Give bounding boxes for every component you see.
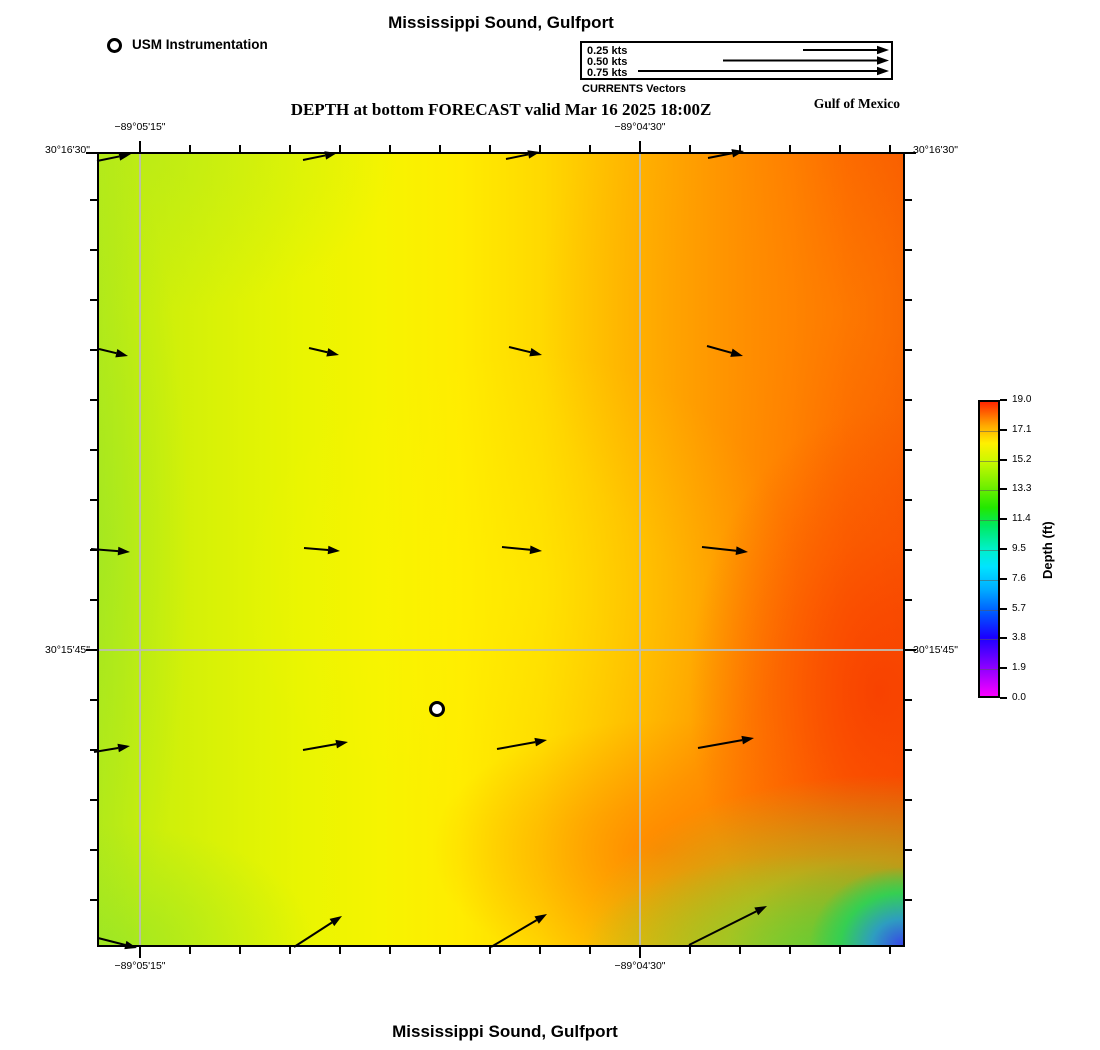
colorbar-tick bbox=[1000, 488, 1007, 490]
axis-tick-y bbox=[90, 299, 97, 301]
lon-label-top: −89°05'15" bbox=[80, 121, 200, 133]
axis-tick-y bbox=[905, 549, 912, 551]
axis-tick-y bbox=[90, 199, 97, 201]
station-legend-circle-icon bbox=[107, 38, 122, 53]
colorbar-level-line bbox=[980, 550, 998, 551]
region-label: Gulf of Mexico bbox=[740, 96, 900, 112]
lat-label-left: 30°15'45" bbox=[18, 644, 90, 656]
axis-tick-y bbox=[90, 249, 97, 251]
axis-tick-x bbox=[139, 141, 141, 152]
axis-tick-y bbox=[905, 799, 912, 801]
axis-tick-x bbox=[689, 947, 691, 954]
colorbar-level-line bbox=[980, 580, 998, 581]
lat-label-left: 30°16'30" bbox=[18, 144, 90, 156]
colorbar-tick-label: 17.1 bbox=[1012, 424, 1052, 435]
axis-tick-y bbox=[90, 699, 97, 701]
axis-tick-x bbox=[689, 145, 691, 152]
lat-gridline-1 bbox=[99, 649, 903, 651]
colorbar-tick bbox=[1000, 518, 1007, 520]
station-legend-label: USM Instrumentation bbox=[132, 37, 268, 52]
depth-colorbar bbox=[978, 400, 1000, 698]
axis-tick-x bbox=[239, 145, 241, 152]
axis-tick-x bbox=[239, 947, 241, 954]
axis-tick-y bbox=[905, 249, 912, 251]
axis-tick-x bbox=[489, 947, 491, 954]
axis-tick-y bbox=[905, 699, 912, 701]
axis-tick-x bbox=[489, 145, 491, 152]
colorbar-level-line bbox=[980, 461, 998, 462]
axis-tick-x bbox=[839, 145, 841, 152]
lon-gridline-1 bbox=[139, 154, 141, 945]
colorbar-tick-label: 3.8 bbox=[1012, 632, 1052, 643]
axis-tick-x bbox=[339, 145, 341, 152]
axis-tick-x bbox=[189, 145, 191, 152]
colorbar-tick bbox=[1000, 697, 1007, 699]
currents-legend-box: 0.25 kts 0.50 kts 0.75 kts bbox=[580, 41, 893, 80]
axis-tick-x bbox=[139, 947, 141, 958]
axis-tick-y bbox=[90, 499, 97, 501]
colorbar-level-line bbox=[980, 431, 998, 432]
axis-tick-y bbox=[905, 299, 912, 301]
axis-tick-y bbox=[905, 199, 912, 201]
colorbar-tick bbox=[1000, 608, 1007, 610]
lat-label-right: 30°15'45" bbox=[913, 644, 958, 656]
colorbar-tick-label: 7.6 bbox=[1012, 573, 1052, 584]
colorbar-tick bbox=[1000, 429, 1007, 431]
axis-tick-y bbox=[90, 849, 97, 851]
axis-tick-x bbox=[889, 145, 891, 152]
depth-heatmap bbox=[97, 152, 905, 947]
axis-tick-y bbox=[905, 499, 912, 501]
axis-tick-y bbox=[905, 849, 912, 851]
axis-tick-y bbox=[905, 749, 912, 751]
axis-tick-y bbox=[905, 449, 912, 451]
colorbar-tick bbox=[1000, 578, 1007, 580]
colorbar-tick-label: 19.0 bbox=[1012, 394, 1052, 405]
lon-label-bottom: −89°04'30" bbox=[580, 960, 700, 972]
axis-tick-y bbox=[90, 749, 97, 751]
colorbar-tick-label: 9.5 bbox=[1012, 543, 1052, 554]
axis-tick-y bbox=[90, 349, 97, 351]
axis-tick-x bbox=[789, 947, 791, 954]
lon-gridline-2 bbox=[639, 154, 641, 945]
colorbar-tick bbox=[1000, 637, 1007, 639]
axis-tick-y bbox=[90, 899, 97, 901]
currents-legend-caption: CURRENTS Vectors bbox=[582, 83, 686, 95]
axis-tick-x bbox=[289, 145, 291, 152]
axis-tick-x bbox=[889, 947, 891, 954]
colorbar-tick-label: 0.0 bbox=[1012, 692, 1052, 703]
axis-tick-x bbox=[539, 947, 541, 954]
colorbar-level-line bbox=[980, 639, 998, 640]
axis-tick-x bbox=[539, 145, 541, 152]
axis-tick-y bbox=[905, 599, 912, 601]
colorbar-tick bbox=[1000, 548, 1007, 550]
axis-tick-x bbox=[289, 947, 291, 954]
axis-tick-x bbox=[439, 145, 441, 152]
lat-label-right: 30°16'30" bbox=[913, 144, 958, 156]
axis-tick-x bbox=[639, 141, 641, 152]
axis-tick-x bbox=[739, 145, 741, 152]
colorbar-tick bbox=[1000, 399, 1007, 401]
axis-tick-x bbox=[789, 145, 791, 152]
axis-tick-x bbox=[639, 947, 641, 958]
axis-tick-x bbox=[589, 145, 591, 152]
axis-tick-y bbox=[905, 899, 912, 901]
lon-label-top: −89°04'30" bbox=[580, 121, 700, 133]
colorbar-tick-label: 13.3 bbox=[1012, 483, 1052, 494]
axis-tick-x bbox=[739, 947, 741, 954]
axis-tick-x bbox=[589, 947, 591, 954]
axis-tick-y bbox=[905, 349, 912, 351]
colorbar-tick bbox=[1000, 667, 1007, 669]
lon-label-bottom: −89°05'15" bbox=[80, 960, 200, 972]
axis-tick-y bbox=[90, 449, 97, 451]
axis-tick-x bbox=[389, 947, 391, 954]
axis-tick-x bbox=[839, 947, 841, 954]
legend-speed-075: 0.75 kts bbox=[587, 68, 627, 79]
axis-tick-y bbox=[90, 799, 97, 801]
colorbar-tick-label: 15.2 bbox=[1012, 454, 1052, 465]
axis-tick-x bbox=[339, 947, 341, 954]
axis-tick-y bbox=[90, 399, 97, 401]
page-title: Mississippi Sound, Gulfport bbox=[97, 13, 905, 33]
axis-tick-x bbox=[439, 947, 441, 954]
colorbar-tick-label: 1.9 bbox=[1012, 662, 1052, 673]
axis-tick-x bbox=[189, 947, 191, 954]
colorbar-level-line bbox=[980, 610, 998, 611]
forecast-plot-page: { "header": { "title": "Mississippi Soun… bbox=[0, 0, 1100, 1050]
axis-tick-x bbox=[389, 145, 391, 152]
bottom-title: Mississippi Sound, Gulfport bbox=[97, 1022, 913, 1042]
colorbar-tick-label: 11.4 bbox=[1012, 513, 1052, 524]
axis-tick-y bbox=[905, 399, 912, 401]
colorbar-level-line bbox=[980, 669, 998, 670]
axis-tick-y bbox=[90, 599, 97, 601]
colorbar-level-line bbox=[980, 490, 998, 491]
colorbar-level-line bbox=[980, 520, 998, 521]
axis-tick-y bbox=[90, 549, 97, 551]
colorbar-tick bbox=[1000, 459, 1007, 461]
colorbar-tick-label: 5.7 bbox=[1012, 603, 1052, 614]
